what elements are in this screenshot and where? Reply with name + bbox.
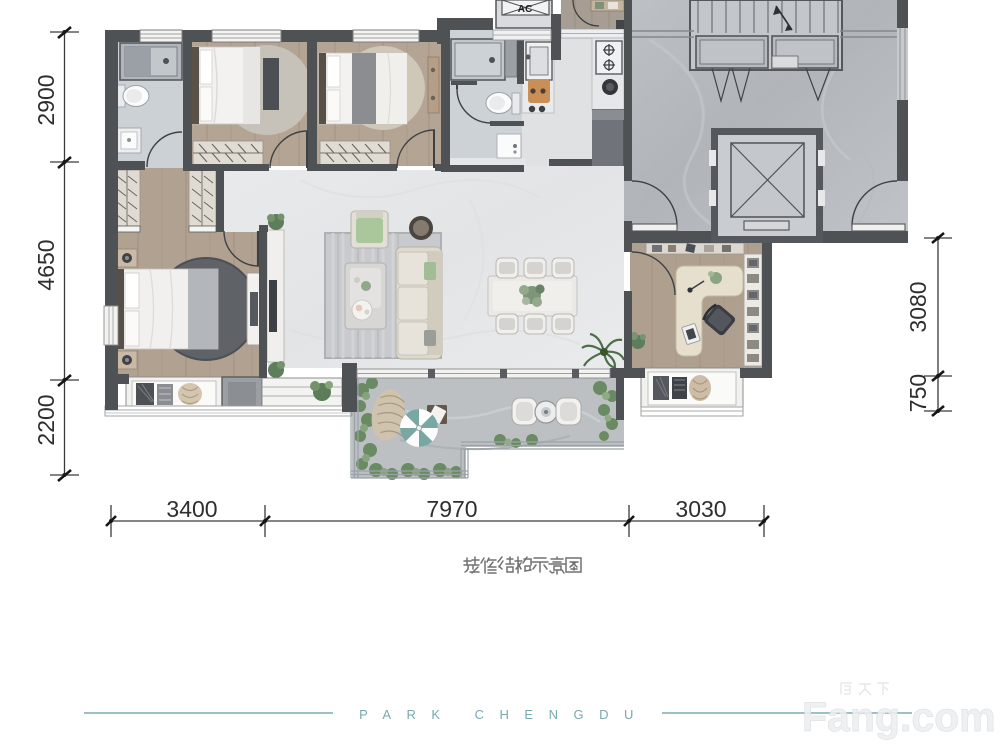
svg-text:2900: 2900 xyxy=(33,74,59,125)
svg-text:3400: 3400 xyxy=(166,496,217,522)
svg-text:3030: 3030 xyxy=(675,496,726,522)
svg-text:2200: 2200 xyxy=(33,394,59,445)
svg-text:4650: 4650 xyxy=(33,239,59,290)
svg-text:PARK CHENGDU: PARK CHENGDU xyxy=(359,707,649,722)
svg-text:Fang.com: Fang.com xyxy=(802,694,996,740)
svg-text:3080: 3080 xyxy=(905,281,931,332)
svg-text:7970: 7970 xyxy=(426,496,477,522)
svg-text:750: 750 xyxy=(905,374,931,412)
svg-text:AC: AC xyxy=(518,4,532,15)
